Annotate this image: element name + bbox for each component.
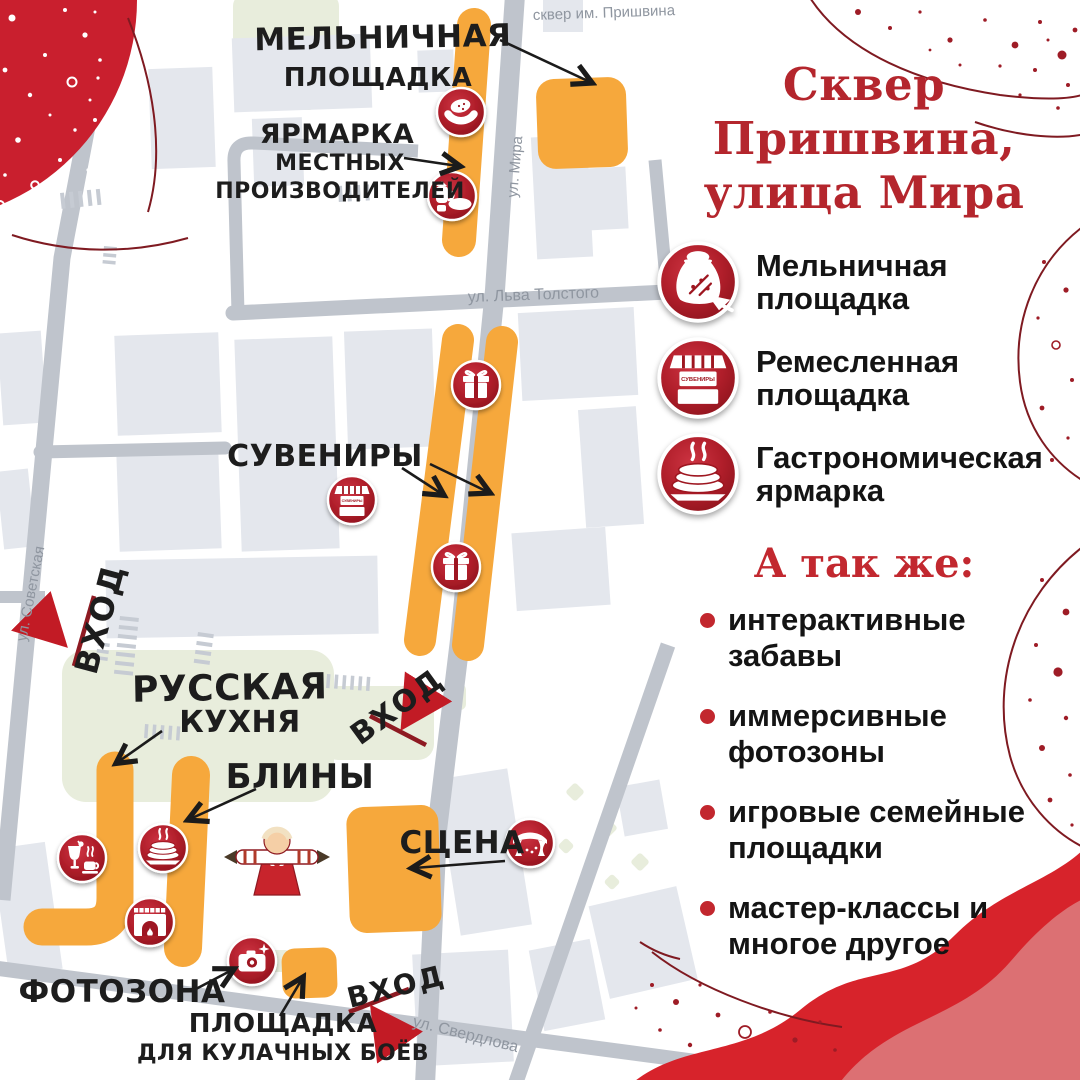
zone-melnichnaya-square <box>535 76 628 169</box>
stove-icon <box>126 898 174 946</box>
deco-waves-bottom-right <box>630 848 1080 1080</box>
gift-icon <box>432 543 480 591</box>
label-russkaya-2: КУХНЯ <box>179 705 301 740</box>
label-melnichnaya-2: ПЛОЩАДКА <box>284 63 473 93</box>
label-suveniry: СУВЕНИРЫ <box>227 439 423 474</box>
map-canvas: СУВЕНИРЫ <box>0 0 1080 1080</box>
camera-icon <box>228 937 276 985</box>
zone-fist-fights-square <box>281 947 338 999</box>
gift-icon <box>452 361 500 409</box>
label-bliny: БЛИНЫ <box>226 757 375 797</box>
event-map-poster: СУВЕНИРЫ <box>0 0 1080 1080</box>
deco-pancake-top-right <box>798 0 1080 137</box>
souvenir-stall-icon <box>328 476 376 524</box>
street-label-prishvin-park: сквер им. Пришвина <box>533 2 676 24</box>
label-kulachnye-1: ПЛОЩАДКА <box>189 1009 378 1039</box>
deco-pancake-right-mid <box>1018 225 1080 482</box>
label-yarmarka-2: МЕСТНЫХ <box>275 151 405 176</box>
label-fotozona: ФОТОЗОНА <box>19 974 226 1010</box>
sausage-icon <box>437 88 485 136</box>
drinks-icon <box>58 834 106 882</box>
zone-stage-square <box>346 804 442 933</box>
label-yarmarka-3: ПРОИЗВОДИТЕЛЕЙ <box>215 178 465 204</box>
label-scena: СЦЕНА <box>399 825 524 861</box>
label-kulachnye-2: ДЛЯ КУЛАЧНЫХ БОЁВ <box>137 1040 429 1066</box>
label-melnichnaya-1: МЕЛЬНИЧНАЯ <box>254 18 512 58</box>
matryoshka-illustration <box>224 828 330 895</box>
pancakes-icon <box>139 824 187 872</box>
deco-pancake-right-lower <box>1004 545 1080 848</box>
label-yarmarka-1: ЯРМАРКА <box>260 119 415 150</box>
